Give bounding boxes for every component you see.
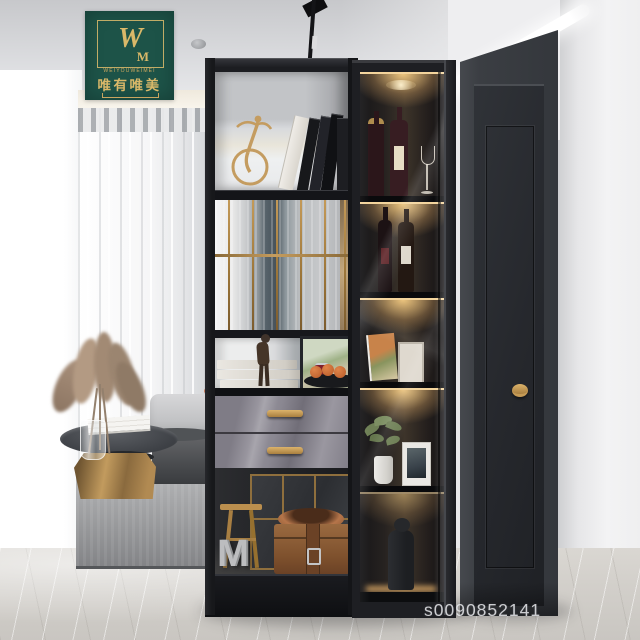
glass-vase	[80, 420, 106, 460]
bottle-label	[401, 246, 411, 264]
bottle-neck	[383, 207, 388, 221]
watermark: s0090852141	[424, 600, 541, 621]
plant-pot	[374, 456, 393, 484]
wine-bottle	[378, 220, 392, 292]
gold-rod	[344, 200, 346, 330]
fruit	[310, 366, 322, 378]
led-glow	[360, 388, 446, 424]
photo-frame	[402, 442, 431, 486]
glass-bowl	[421, 146, 435, 165]
bottle-label	[381, 248, 389, 264]
glass-foot	[421, 191, 433, 194]
recessed-light	[191, 39, 206, 49]
drawer-handle	[267, 410, 303, 417]
bottle-neck	[397, 107, 402, 121]
brand-chinese-name: 唯有唯美	[88, 74, 171, 94]
curtain-heading	[78, 108, 216, 132]
monogram-letter: M	[137, 49, 149, 65]
magazine-display	[366, 333, 398, 381]
gold-rod	[324, 200, 326, 330]
bottle-neck	[404, 209, 409, 223]
divider-top-rail	[205, 58, 358, 73]
wine-bottle	[368, 118, 384, 202]
led-spot	[386, 80, 416, 90]
glass-stem	[426, 164, 428, 190]
photo	[407, 448, 426, 478]
door-panel	[486, 126, 534, 568]
fruit	[334, 366, 346, 378]
gold-rod	[276, 200, 278, 330]
sitting-figurine-body	[256, 342, 270, 367]
wine-bottle	[398, 222, 414, 292]
sculpture-head	[394, 518, 410, 532]
entry-door	[460, 26, 558, 616]
sculpture-body	[388, 530, 414, 590]
gold-rod	[252, 200, 254, 330]
monogram-frame: W M	[97, 20, 164, 68]
monogram-letter: W	[98, 23, 163, 55]
badge-underline	[102, 93, 159, 98]
divider-plinth	[205, 574, 358, 617]
fruit	[322, 364, 334, 376]
bottle-neck	[374, 111, 379, 125]
wine-glass	[420, 146, 434, 196]
bottle-label	[394, 146, 404, 170]
cabinet-compartment	[360, 72, 446, 196]
led-glow	[360, 72, 446, 108]
drawer-gap	[215, 432, 348, 434]
led-glow	[360, 298, 446, 334]
display-card	[398, 342, 424, 384]
divider-left-stile	[205, 58, 215, 615]
box-buckle	[307, 548, 321, 565]
divider-shelf-bar	[205, 388, 358, 396]
interior-product-photo: M	[0, 0, 640, 640]
window-glare	[0, 70, 82, 572]
gold-rod-horizontal	[215, 254, 348, 257]
cabinet-interior	[360, 72, 446, 602]
glass-door-seam	[438, 72, 441, 602]
divider-open-grille	[215, 200, 348, 330]
gold-ring-figurine	[224, 112, 284, 188]
gold-stand	[220, 504, 262, 510]
brand-latin-name: WEIYOUWEIMEI	[91, 68, 167, 74]
brand-badge: W M WEIYOUWEIMEI 唯有唯美	[85, 11, 174, 100]
drawer-handle	[267, 447, 303, 454]
wine-bottle	[390, 120, 408, 196]
door-handle	[512, 384, 528, 397]
gold-rod	[300, 200, 302, 330]
decor-letter: M	[210, 532, 256, 576]
spotlight-sleeve	[312, 36, 318, 49]
gold-rod	[228, 200, 230, 330]
coffee-table-gold-base	[74, 453, 156, 499]
cabinet-side-panel	[444, 60, 456, 615]
leather-box	[274, 524, 350, 574]
right-wall	[554, 0, 640, 640]
